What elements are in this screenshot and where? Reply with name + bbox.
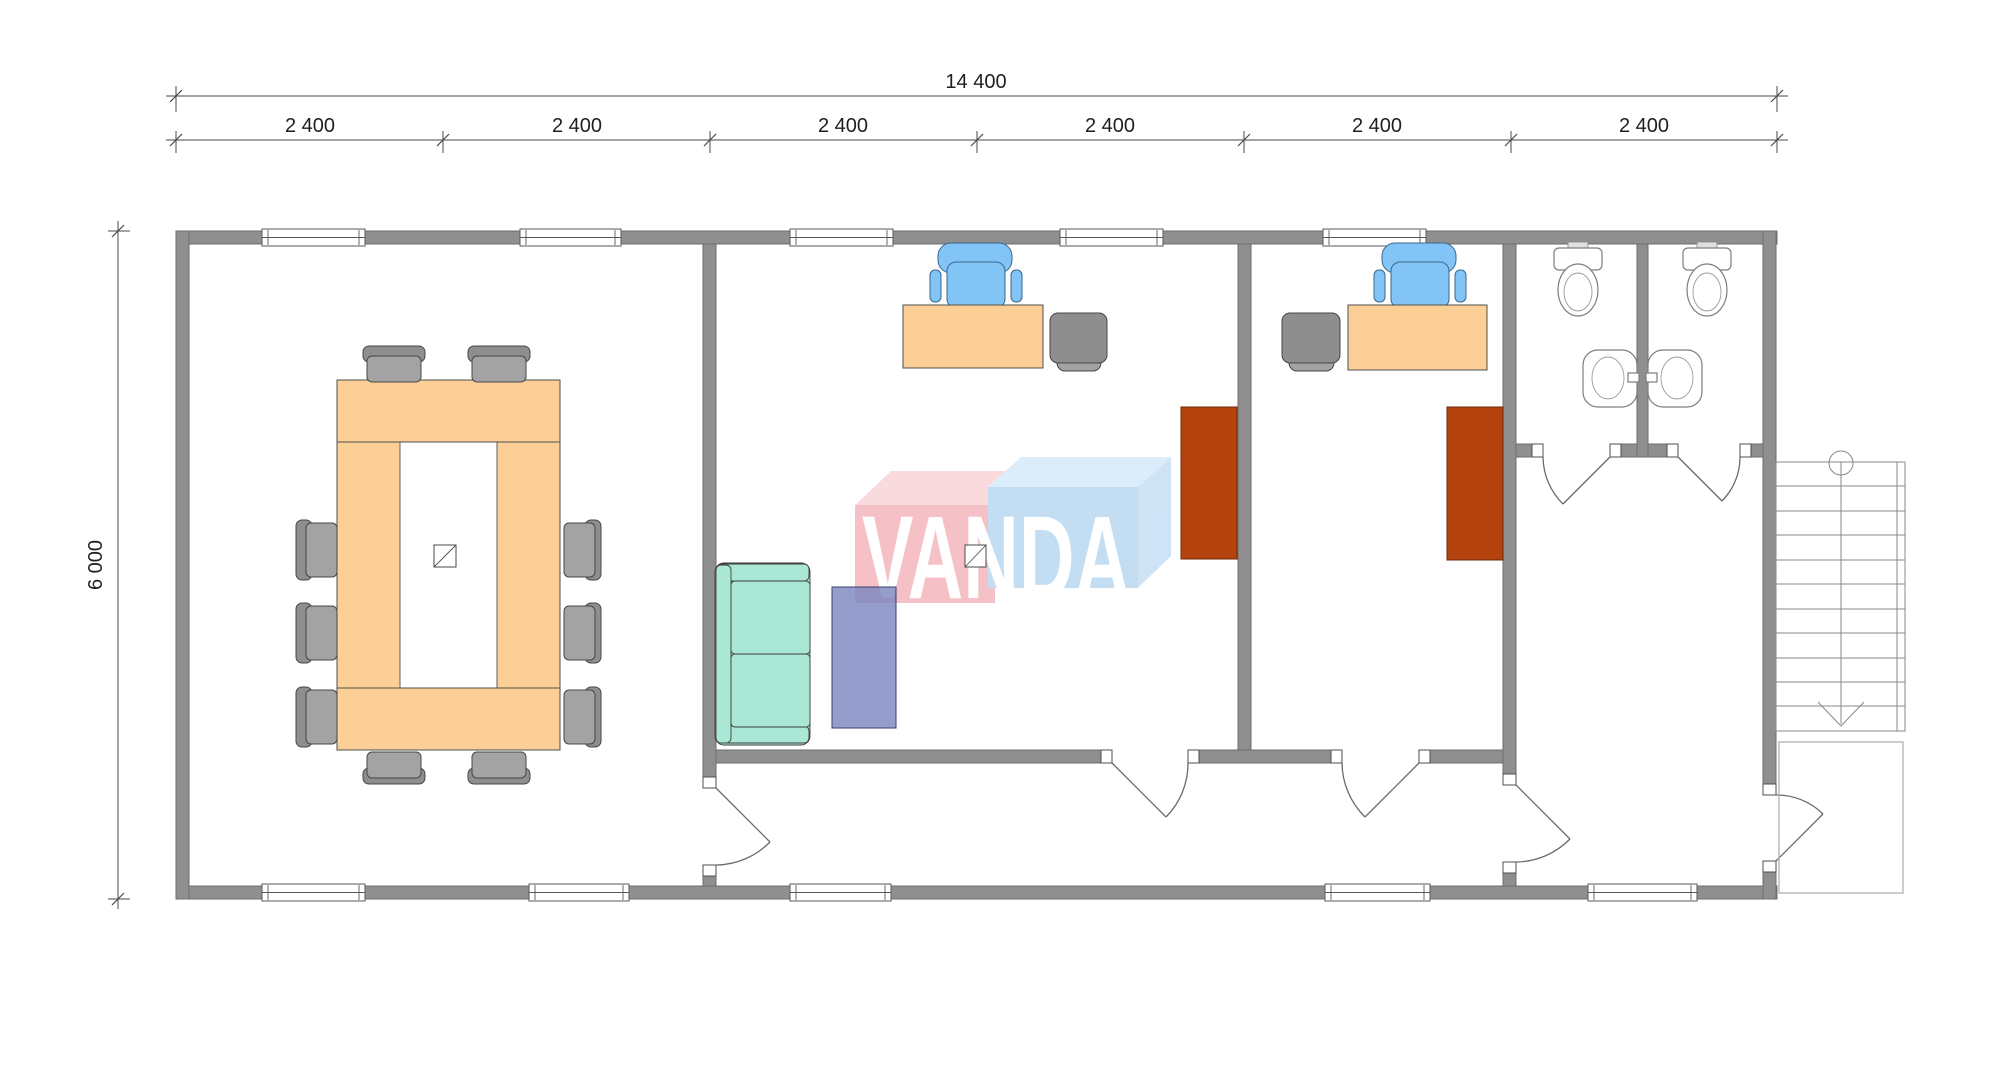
conference-chair <box>564 603 601 663</box>
wall-top <box>176 231 1777 244</box>
door-exterior <box>1776 795 1823 861</box>
window <box>790 229 893 246</box>
door-office2 <box>1342 763 1419 817</box>
dim-total-width: 14 400 <box>945 71 1006 93</box>
dim-bay: 2 400 <box>1085 115 1135 137</box>
dim-height: 6 000 <box>85 540 107 590</box>
conference-chair <box>564 520 601 580</box>
cabinet <box>1447 407 1503 560</box>
sink <box>1583 350 1639 407</box>
wall-wc-divider <box>1637 244 1648 457</box>
sofa <box>715 563 810 745</box>
wall-left <box>176 231 189 899</box>
desk <box>903 305 1043 368</box>
office-2-furniture <box>1282 243 1503 560</box>
window <box>1325 884 1430 901</box>
door-wc-right <box>1678 457 1740 501</box>
floor-symbol <box>965 545 986 567</box>
cabinet <box>1181 407 1237 559</box>
conference-chair <box>363 752 425 784</box>
window <box>790 884 891 901</box>
floor-symbol <box>434 545 456 567</box>
desk <box>1348 305 1487 370</box>
dim-bay: 2 400 <box>1619 115 1669 137</box>
window <box>529 884 629 901</box>
wall-bottom <box>176 886 1777 899</box>
conference-chair <box>296 687 337 747</box>
vanda-logo-watermark: VANDA <box>855 457 1171 624</box>
conference-chair <box>468 346 530 382</box>
office-chair <box>930 243 1022 308</box>
dim-bay: 2 400 <box>818 115 868 137</box>
visitor-chair <box>1050 313 1107 371</box>
landing-outline <box>1779 742 1903 893</box>
dim-bay: 2 400 <box>552 115 602 137</box>
door-wc-left <box>1543 457 1610 504</box>
toilet <box>1554 242 1602 316</box>
window <box>1588 884 1697 901</box>
conference-chair <box>468 752 530 784</box>
visitor-chair <box>1282 313 1340 371</box>
door-office1 <box>1112 763 1188 817</box>
sink <box>1646 350 1702 407</box>
staircase <box>1776 451 1905 893</box>
window <box>262 884 365 901</box>
door-entry-hall <box>1516 785 1570 862</box>
toilet <box>1683 242 1731 316</box>
dim-bay: 2 400 <box>1352 115 1402 137</box>
conference-chair <box>564 687 601 747</box>
wall-office1-office2 <box>1238 244 1251 763</box>
dim-bay: 2 400 <box>285 115 335 137</box>
meeting-room-furniture <box>296 346 601 784</box>
window <box>520 229 621 246</box>
conference-chair <box>296 520 337 580</box>
door-meeting-room <box>716 788 770 865</box>
logo-text: VANDA <box>862 492 1130 624</box>
window <box>262 229 365 246</box>
conference-chair <box>296 603 337 663</box>
window <box>1060 229 1163 246</box>
floor-plan-canvas: VANDA <box>0 0 2000 1076</box>
office-chair <box>1374 243 1466 308</box>
bench <box>832 587 896 728</box>
conference-chair <box>363 346 425 382</box>
